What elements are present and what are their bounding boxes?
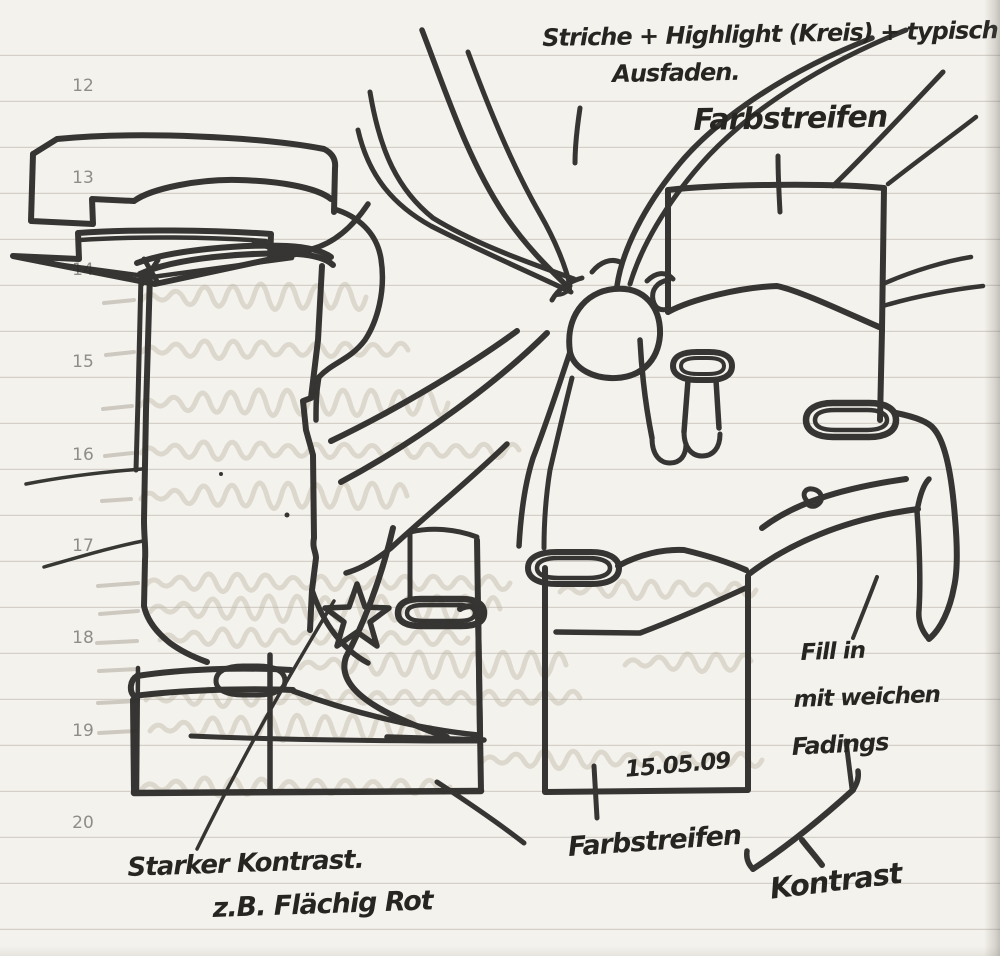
kontrast-arrow	[747, 771, 859, 869]
left-column-shape	[134, 180, 382, 662]
note-technique-line2: Ausfaden.	[612, 58, 740, 88]
stray-arcs	[26, 469, 143, 567]
sketch-drawing	[0, 0, 1000, 956]
label-farbstreifen-top: Farbstreifen	[693, 100, 888, 138]
page-edge-shading	[984, 0, 1000, 956]
label-fill-in: Fill in	[800, 638, 866, 666]
pencil-ghost-text	[140, 284, 762, 796]
banner-shape	[31, 135, 335, 224]
pencil-bullet-dashes	[97, 300, 138, 733]
left-boot-shape	[131, 528, 484, 790]
page-bottom-shading	[0, 946, 1000, 956]
label-fill-in-line2: mit weichen	[793, 682, 940, 713]
center-leg-shape	[519, 352, 619, 584]
sketchbook-page: 12 13 14 15 16 17 18 19 20	[0, 0, 1000, 956]
right-arm-shape	[749, 413, 957, 639]
label-fill-in-line3: Fadings	[791, 728, 889, 761]
